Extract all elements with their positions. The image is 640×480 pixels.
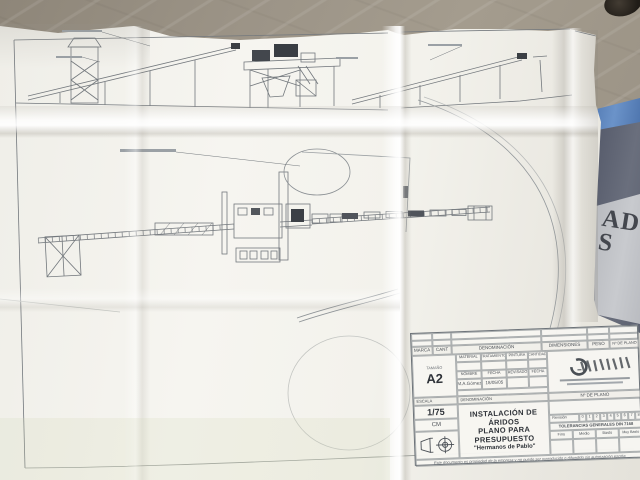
company-logo-box (547, 348, 640, 393)
projection-symbol-icon (417, 432, 458, 457)
photo-scene: ADS (0, 0, 640, 480)
sheet-size-label: TAMAÑO (426, 366, 442, 370)
elevation-view (16, 30, 572, 110)
title-block: MARCA CANT DENOMINACIÓN DIMENSIONES PESO… (410, 325, 640, 466)
denomination-box: INSTALACIÓN DE ÁRIDOS PLANO PARA PRESUPU… (458, 401, 551, 458)
company-logo (555, 355, 634, 378)
sheet-size-value: A2 (426, 372, 443, 386)
sheet-size-cell: TAMAÑO A2 (412, 354, 458, 398)
company-address-line (566, 381, 622, 385)
drawing-title-line2: PLANO PARA PRESUPUESTO (459, 424, 549, 445)
projection-symbol-cell (415, 430, 460, 460)
